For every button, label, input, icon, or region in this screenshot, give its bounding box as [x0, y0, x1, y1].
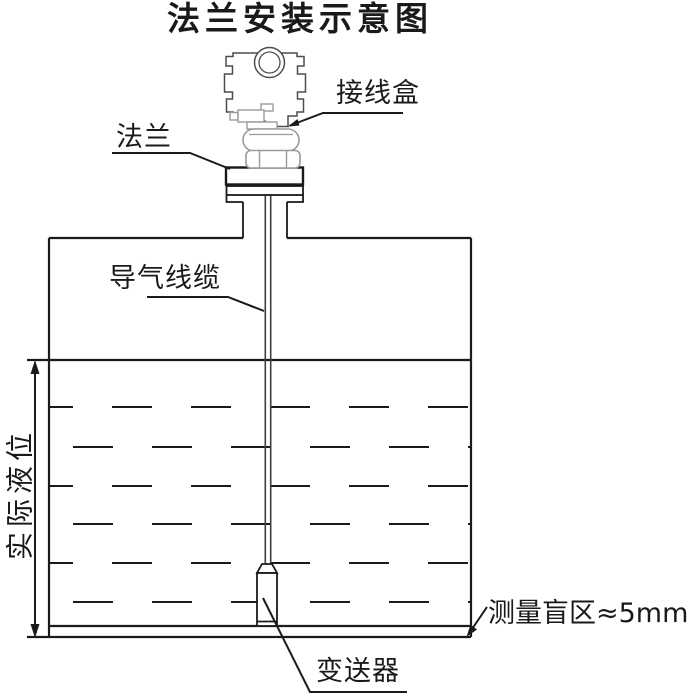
- label-flange: 法兰: [116, 123, 172, 153]
- vent-tab: [230, 113, 238, 121]
- transmitter-head: [225, 48, 306, 169]
- page-title: 法兰安装示意图: [167, 1, 433, 37]
- suspension-cable: [265, 186, 270, 565]
- label-junction-box: 接线盒: [336, 79, 420, 109]
- leader-air-cable: [147, 297, 264, 311]
- neck-pedestal: [247, 122, 277, 129]
- leader-flange: [112, 153, 230, 169]
- dimension-arrowhead-up: [31, 360, 40, 374]
- leader-junction-box-arrowhead: [288, 119, 300, 127]
- swivel-capsule: [243, 129, 299, 151]
- probe-weight: [257, 564, 277, 626]
- label-actual-level: 实际液位: [6, 428, 37, 560]
- schematic-page: { "title": "法兰安装示意图", "labels": { "junct…: [0, 0, 700, 700]
- flange-plate: [226, 168, 303, 185]
- label-transmitter: 变送器: [316, 657, 400, 687]
- diagram-stage: 法兰安装示意图 接线盒 法兰 导气线缆 实际液位 测量盲区≈5mm 变送器: [0, 0, 700, 700]
- vent-block: [238, 110, 264, 122]
- label-air-cable: 导气线缆: [109, 264, 221, 294]
- weight-taper: [257, 564, 277, 573]
- label-blind-zone: 测量盲区≈5mm: [488, 599, 688, 629]
- leader-junction-box: [290, 113, 403, 126]
- hex-nut: [246, 151, 300, 169]
- nozzle-flange-plate: [227, 186, 304, 195]
- tank-outline: [27, 238, 471, 637]
